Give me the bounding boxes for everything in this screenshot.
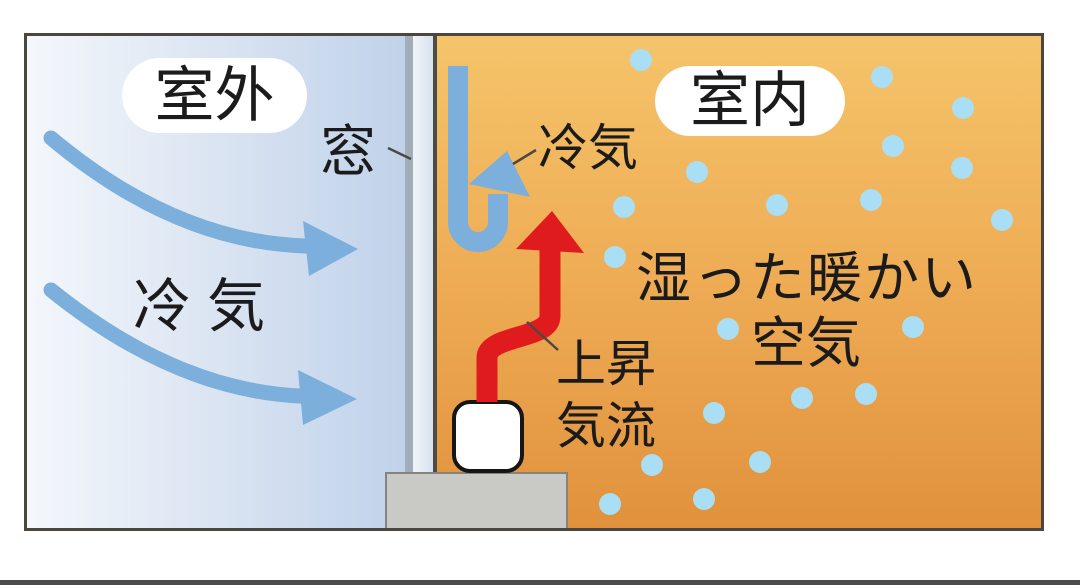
moisture-droplet: [902, 316, 924, 338]
moisture-droplet: [693, 488, 715, 510]
indoor-label: 室内: [690, 71, 810, 131]
moisture-droplet: [613, 196, 635, 218]
moisture-droplet: [686, 161, 708, 183]
moisture-droplet: [991, 209, 1013, 231]
moisture-droplet: [599, 493, 621, 515]
cold-air-pointer-line: [513, 150, 536, 164]
moist-warm-air-label-line2: 空気: [751, 316, 861, 371]
outdoor-label: 室外: [155, 66, 275, 126]
moisture-droplet: [630, 49, 652, 71]
indoor-label-pill: 室内: [655, 66, 845, 136]
cold-air-downdraft-arrow: [458, 66, 530, 242]
updraft-label-line2: 気流: [544, 395, 668, 457]
moist-warm-air-label-line1: 湿った暖かい: [636, 251, 978, 306]
updraft-label-line1: 上昇: [544, 333, 668, 395]
moisture-droplet: [791, 387, 813, 409]
moisture-droplet: [749, 451, 771, 473]
moisture-droplet: [855, 383, 877, 405]
updraft-label: 上昇 気流: [544, 333, 668, 457]
moisture-droplet: [766, 194, 788, 216]
moisture-droplet: [717, 318, 739, 340]
condensation-diagram: 室外 室内 窓 冷 気 冷気 上昇 気流 湿った暖かい 空気: [0, 0, 1080, 588]
moisture-droplet: [641, 454, 663, 476]
moisture-droplet: [871, 66, 893, 88]
window-pointer-line: [388, 148, 411, 159]
moisture-droplet: [860, 189, 882, 211]
cold-air-arrow-upper: [51, 138, 358, 276]
moisture-droplet: [951, 157, 973, 179]
window-label: 窓: [320, 124, 376, 180]
indoor-cold-air-label: 冷気: [538, 123, 638, 173]
moisture-droplet: [604, 246, 626, 268]
moisture-droplet: [882, 135, 904, 157]
moisture-droplet: [952, 97, 974, 119]
moisture-droplet: [703, 402, 725, 424]
outdoor-label-pill: 室外: [122, 58, 307, 133]
outdoor-cold-air-label: 冷 気: [133, 278, 265, 336]
